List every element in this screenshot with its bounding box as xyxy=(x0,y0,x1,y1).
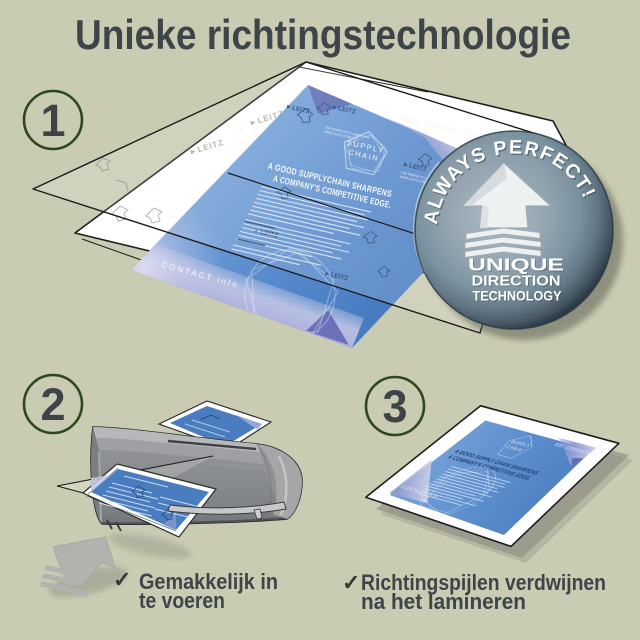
svg-text:TECHNOLOGY: TECHNOLOGY xyxy=(473,289,562,304)
svg-text:✓: ✓ xyxy=(342,570,360,595)
svg-text:1: 1 xyxy=(40,95,65,146)
svg-text:2: 2 xyxy=(40,379,65,430)
svg-text:te voeren: te voeren xyxy=(139,588,225,613)
svg-text:✓: ✓ xyxy=(113,567,131,592)
svg-text:UNIQUE: UNIQUE xyxy=(468,255,564,275)
svg-text:Unieke richtingstechnologie: Unieke richtingstechnologie xyxy=(75,11,571,58)
svg-text:DIRECTION: DIRECTION xyxy=(472,274,561,290)
svg-text:3: 3 xyxy=(382,381,407,432)
svg-text:na het lamineren: na het lamineren xyxy=(361,589,526,614)
